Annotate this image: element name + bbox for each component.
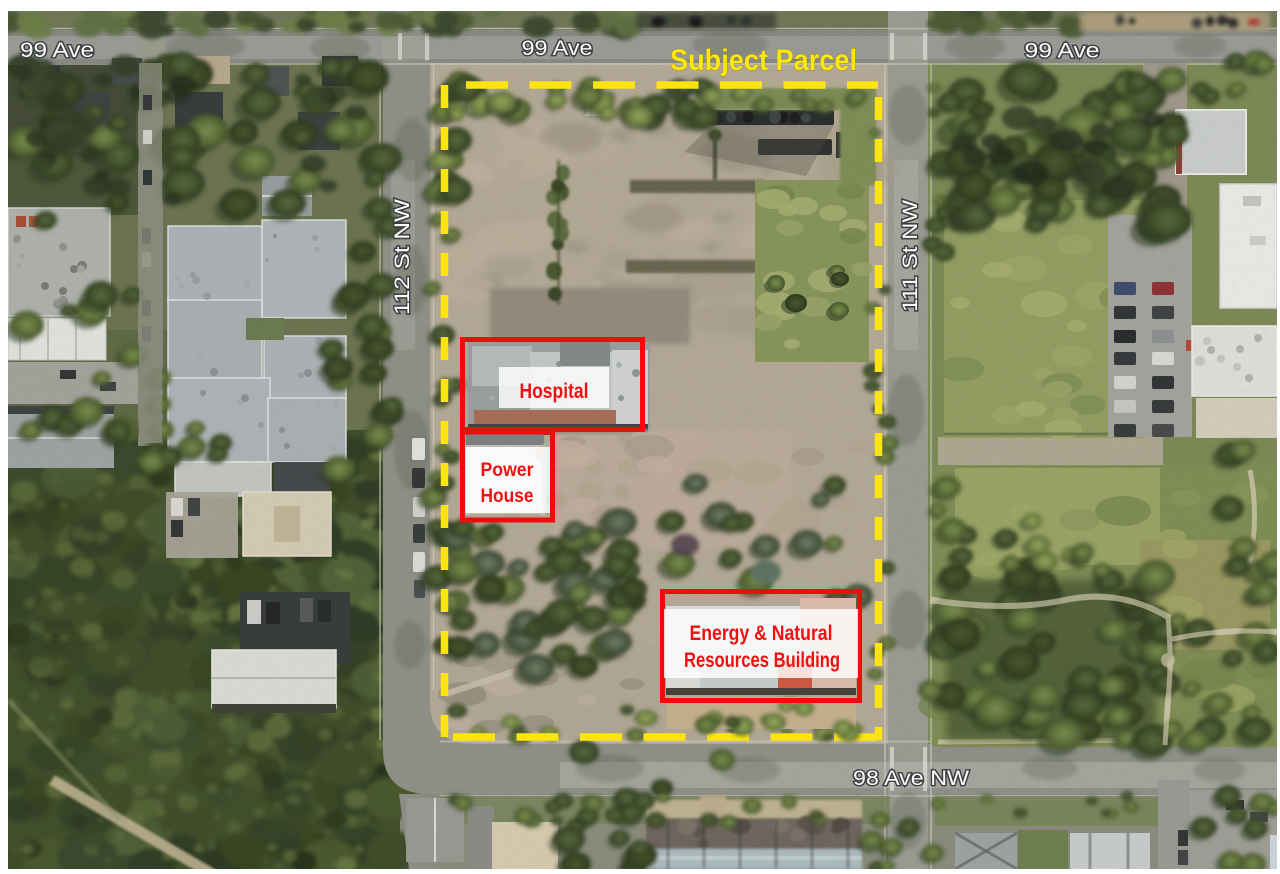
- svg-text:Power: Power: [481, 460, 535, 481]
- svg-text:House: House: [481, 486, 534, 507]
- svg-text:99 Ave: 99 Ave: [1025, 40, 1100, 63]
- svg-text:Hospital: Hospital: [520, 379, 589, 403]
- svg-text:Resources Building: Resources Building: [684, 648, 840, 672]
- svg-text:Energy & Natural: Energy & Natural: [690, 621, 833, 645]
- svg-text:98 Ave NW: 98 Ave NW: [853, 767, 969, 790]
- svg-text:111 St NW: 111 St NW: [899, 200, 922, 312]
- svg-text:99 Ave: 99 Ave: [20, 39, 94, 62]
- svg-text:Subject Parcel: Subject Parcel: [670, 44, 857, 77]
- svg-text:99 Ave: 99 Ave: [522, 37, 593, 60]
- svg-text:112 St NW: 112 St NW: [391, 199, 414, 315]
